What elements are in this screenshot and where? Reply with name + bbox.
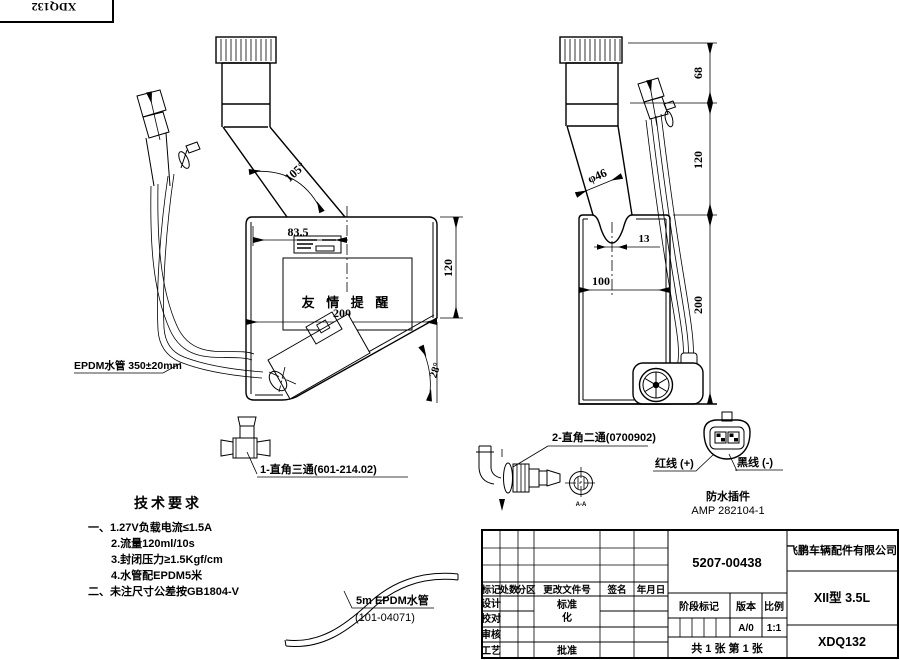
row-label-audit: 审核 [481, 628, 501, 641]
tee-fitting-label: 1-直角三通(601-214.02) [260, 462, 377, 476]
section-view-aa: A-A [565, 467, 597, 508]
dimension-100: 100 [579, 274, 670, 290]
tech-req-item-3: 3.封闭压力≥1.5Kgf/cm [111, 552, 223, 566]
hose-5m-label: 5m EPDM水管 [356, 593, 429, 607]
bottom-angle-value: 28° [427, 361, 443, 379]
neck-angle-dimension: 105° [249, 159, 322, 212]
version-header: 版本 [736, 600, 757, 613]
red-wire-label: 红线 (+) [655, 456, 694, 470]
dim-120-side-value: 120 [691, 151, 705, 169]
front-view-tank: 105° 友 情 提 醒 83.5 120 [74, 37, 463, 403]
row-label-process: 工艺 [481, 644, 501, 657]
filler-cap-side [560, 37, 622, 126]
row-label-check: 校对 [481, 612, 501, 625]
standardization-label-1: 标准 [556, 598, 577, 611]
rev-header-zone: 分区 [516, 584, 536, 596]
black-wire-label: 黑线 (-) [737, 455, 773, 469]
dim-120-front-value: 120 [441, 259, 455, 277]
hose-5m-detail: 5m EPDM水管 (101-04071) [285, 573, 458, 646]
drawing-number: 5207-00438 [692, 555, 761, 570]
rev-header-date: 年月日 [637, 584, 666, 596]
dim-100-value: 100 [592, 274, 610, 288]
dim-200-side-value: 200 [691, 296, 705, 314]
scale-header: 比例 [764, 600, 784, 613]
tech-req-item-4: 4.水管配EPDM5米 [111, 568, 203, 582]
technical-requirements: 技术要求 一、1.27V负载电流≤1.5A 2.流量120ml/10s 3.封闭… [88, 495, 240, 598]
epdm-hose-note: EPDM水管 350±20mm [74, 359, 182, 373]
washer-pump-front [266, 312, 370, 399]
product-model: XII型 3.5L [814, 590, 871, 605]
scale-value: 1:1 [767, 623, 782, 634]
stage-mark-header: 阶段标记 [679, 600, 719, 613]
waterproof-connector-model: AMP 282104-1 [691, 505, 764, 517]
dim-83-5-value: 83.5 [288, 225, 309, 239]
epdm-hose-line-2 [163, 174, 263, 372]
pump-wire-2 [158, 184, 254, 354]
side-view-tank: φ46 13 100 68 120 200 [560, 37, 717, 404]
tech-req-item-5: 二、未注尺寸公差按GB1804-V [88, 584, 240, 598]
wire-connector-front [137, 90, 200, 186]
tee-fitting-detail: 1-直角三通(601-214.02) [221, 417, 408, 477]
neck-angle-value: 105° [282, 159, 308, 185]
waterproof-connector-name: 防水插件 [706, 489, 750, 503]
section-aa-label: A-A [576, 502, 587, 508]
dim-13-value: 13 [639, 233, 651, 245]
corner-stamp-code: XDQ132 [32, 0, 77, 14]
hose-5m-part-no: (101-04071) [355, 612, 415, 624]
row-label-design: 设计 [481, 597, 501, 610]
waterproof-connector-detail: 红线 (+) 黑线 (-) 防水插件 AMP 282104-1 [653, 412, 783, 517]
sheet-info: 共 1 张 第 1 张 [691, 641, 764, 655]
dim-68-value: 68 [691, 67, 705, 79]
washer-pump-side [579, 353, 717, 404]
version-value: A/0 [738, 623, 754, 634]
bottom-angle-dimension: 28° [421, 322, 444, 403]
elbow-fitting-detail: 2-直角二通(0700902) [476, 430, 656, 507]
company-name: 飞鹏车辆配件有限公司 [787, 543, 897, 557]
pump-wire-1 [151, 186, 252, 360]
elbow-fitting-label: 2-直角二通(0700902) [552, 430, 656, 444]
standardization-label-2: 化 [562, 611, 572, 624]
rev-header-sign: 签名 [606, 584, 626, 596]
part-number: XDQ132 [818, 635, 866, 649]
pump-wire-side-3 [656, 116, 688, 376]
dimension-120-front: 120 [440, 217, 463, 318]
epdm-hose-note-text: EPDM水管 350±20mm [74, 359, 182, 372]
approve-label: 批准 [557, 644, 577, 657]
tech-req-title: 技术要求 [134, 495, 202, 511]
tech-req-item-2: 2.流量120ml/10s [111, 536, 195, 550]
title-block: 标记 处数 分区 更改文件号 签名 年月日 设计 校对 审核 工艺 标准 化 批… [480, 530, 898, 658]
rev-header-docno: 更改文件号 [543, 584, 591, 596]
filler-cap-front [216, 37, 276, 127]
drawing-canvas: XDQ132 105° 友 情 提 醒 [0, 0, 900, 660]
corner-stamp: XDQ132 [0, 0, 113, 22]
tech-req-item-1: 一、1.27V负载电流≤1.5A [88, 520, 212, 534]
rev-header-mark: 标记 [480, 584, 501, 596]
dimension-chain-right: 68 120 200 [628, 43, 717, 404]
engineering-drawing-sheet: XDQ132 105° 友 情 提 醒 [0, 0, 900, 660]
